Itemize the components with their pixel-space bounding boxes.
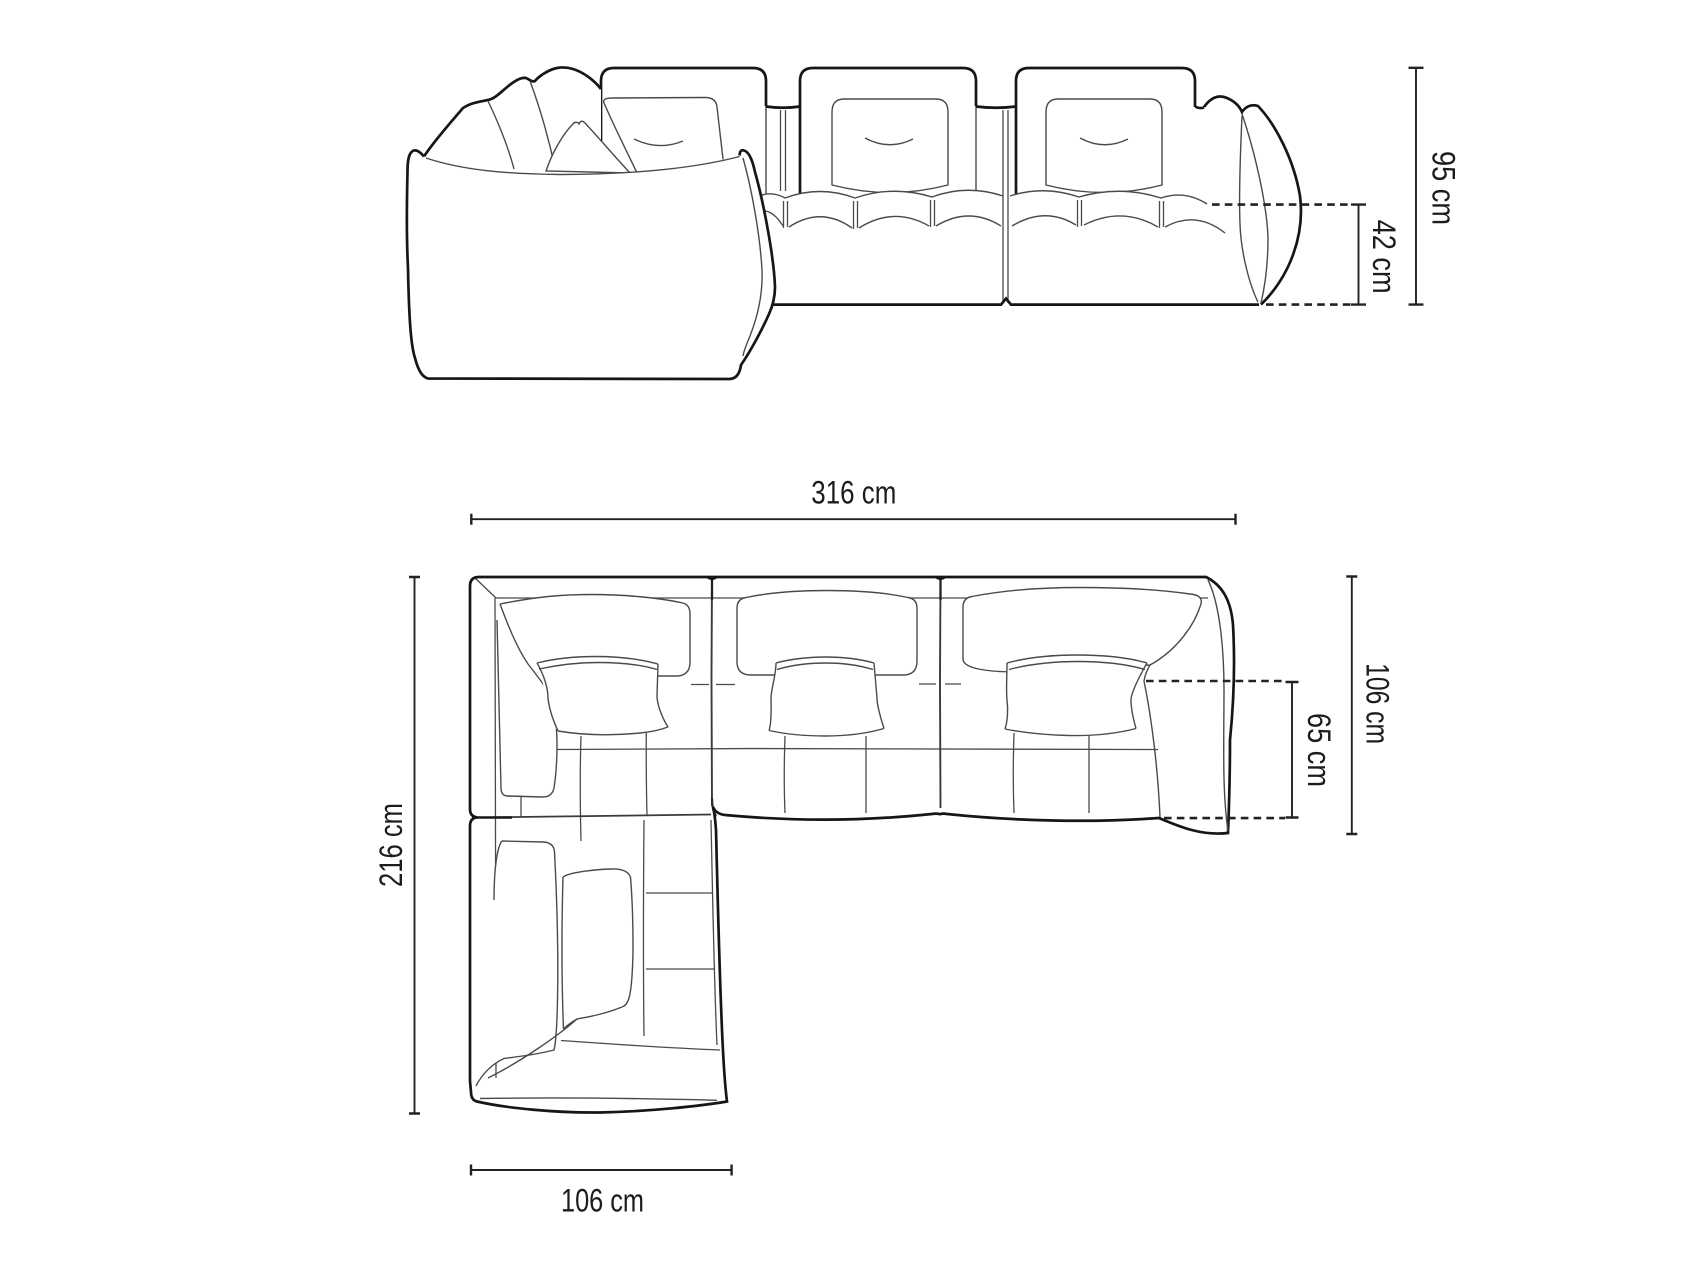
svg-text:95 cm: 95 cm	[1426, 151, 1462, 225]
svg-text:106 cm: 106 cm	[1360, 663, 1396, 744]
svg-text:65 cm: 65 cm	[1301, 713, 1337, 787]
svg-text:106 cm: 106 cm	[561, 1183, 644, 1219]
svg-text:216 cm: 216 cm	[373, 803, 409, 887]
svg-text:316 cm: 316 cm	[811, 475, 896, 511]
svg-text:42 cm: 42 cm	[1366, 220, 1402, 294]
